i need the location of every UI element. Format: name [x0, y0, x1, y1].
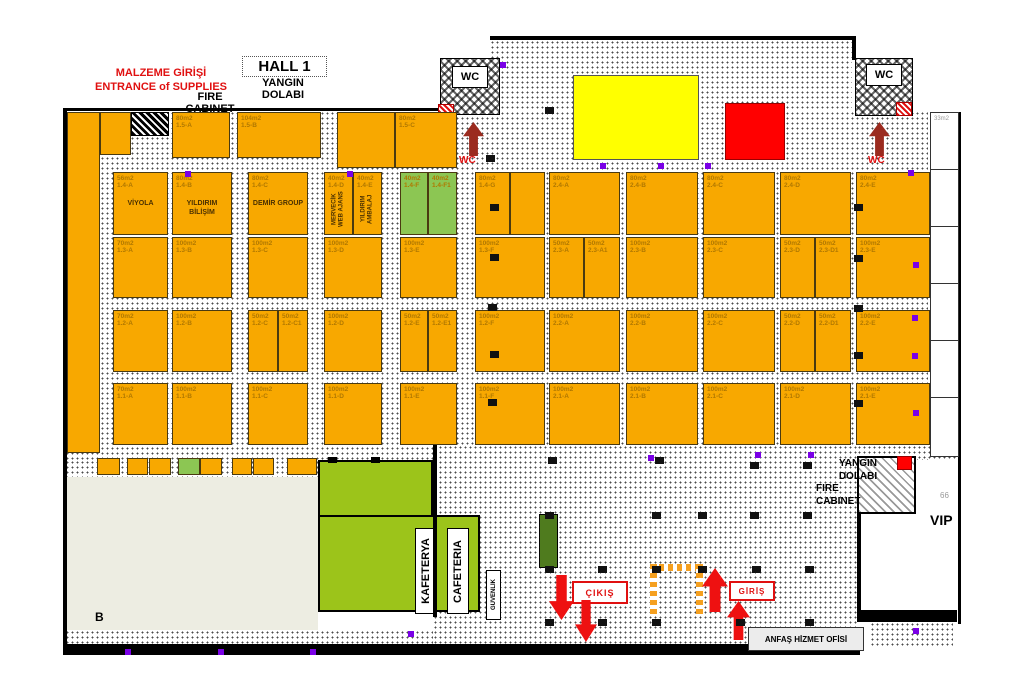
side-room	[930, 340, 959, 399]
booth-size-and-code: 100m21.3-F	[476, 238, 544, 255]
booth-size-and-code: 80m21.5-C	[396, 113, 456, 130]
hall-floor-plan: B KAFETERYA CAFETERIA GÜVENLİK WC WC WC …	[0, 0, 1018, 700]
pillar-marker	[652, 619, 661, 626]
fire-br-line4: CABINET	[816, 496, 900, 509]
pillar-marker	[854, 255, 863, 262]
booth-1.1-E[interactable]: 100m21.1-E	[400, 383, 457, 445]
booth-1.1-D[interactable]: 100m21.1-D	[324, 383, 382, 445]
pillar-marker	[698, 566, 707, 573]
wc-left-label: WC	[461, 71, 479, 83]
booth-block[interactable]	[510, 172, 545, 235]
booth-company-name: YILDIRIM AMBALAJ	[354, 186, 381, 232]
booth-1.3-D[interactable]: 100m21.3-D	[324, 237, 382, 298]
booth-1.2-A[interactable]: 70m21.2-A	[113, 310, 168, 372]
utility-point-marker	[310, 649, 316, 655]
booth-company-name: MERVECİK WEB AJANS	[325, 186, 352, 232]
booth-1.4-C[interactable]: 80m21.4-CDEMİR GROUP	[248, 172, 308, 235]
pillar-marker	[548, 457, 557, 464]
booth-size-and-code: 40m21.4-F	[401, 173, 427, 190]
booth-size-and-code	[68, 113, 99, 115]
fire-cabinet-top-turkish: YANGIN DOLABI	[243, 77, 323, 101]
wall-cafeteria-right	[433, 445, 437, 617]
booth-block[interactable]	[178, 458, 200, 475]
utility-point-marker	[913, 628, 919, 634]
booth-size-and-code: 104m21.5-B	[238, 113, 320, 130]
pillar-marker	[490, 351, 499, 358]
booth-2.2-A[interactable]: 100m22.2-A	[549, 310, 620, 372]
kafeterya-label: KAFETERYA	[420, 538, 432, 604]
booth-size-and-code	[150, 459, 170, 461]
entry-sign: GİRİŞ	[729, 581, 775, 601]
cafeteria-label: CAFETERIA	[452, 540, 464, 603]
utility-point-marker	[705, 163, 711, 169]
cafeteria-tab-1	[328, 457, 337, 463]
utility-point-marker	[912, 353, 918, 359]
utility-point-marker	[600, 163, 606, 169]
booth-2.1-A[interactable]: 100m22.1-A	[549, 383, 620, 445]
booth-size-and-code: 50m21.2-C	[249, 311, 277, 328]
booth-size-and-code: 50m22.3-D	[781, 238, 814, 255]
booth-block[interactable]	[100, 112, 131, 155]
fire-point-top-right	[896, 102, 912, 116]
pillar-marker	[736, 619, 745, 626]
booth-size-and-code: 40m21.4-F1	[429, 173, 456, 190]
floor-area-br-bottom	[870, 622, 953, 648]
booth-1.1-C[interactable]: 100m21.1-C	[248, 383, 308, 445]
hall-title: HALL 1	[258, 58, 310, 75]
utility-point-marker	[912, 315, 918, 321]
booth-2.4-E[interactable]: 80m22.4-E	[856, 172, 930, 235]
booth-1.5-C[interactable]: 80m21.5-C	[395, 112, 457, 168]
booth-size-and-code: 80m22.4-D	[781, 173, 850, 190]
pillar-marker	[750, 462, 759, 469]
info-kiosk	[539, 514, 558, 568]
booth-2.3-D[interactable]: 50m22.3-D	[780, 237, 815, 298]
booth-size-and-code: 100m21.1-B	[173, 384, 231, 401]
utility-point-marker	[218, 649, 224, 655]
booth-1.4-F1[interactable]: 40m21.4-F1	[428, 172, 457, 235]
utility-point-marker	[913, 410, 919, 416]
pillar-marker	[854, 204, 863, 211]
booth-1.4-D[interactable]: 40m21.4-DMERVECİK WEB AJANS	[324, 172, 353, 235]
red-block	[725, 103, 785, 160]
pillar-marker	[655, 457, 664, 464]
side-room	[930, 226, 959, 285]
wall-top-left	[65, 108, 490, 111]
utility-point-marker	[755, 452, 761, 458]
fire-br-line1: YANGIN	[816, 458, 900, 471]
booth-size-and-code: 100m21.3-C	[249, 238, 307, 255]
guvenlik-label: GÜVENLİK	[491, 579, 497, 610]
booth-2.4-A[interactable]: 80m22.4-A	[549, 172, 620, 235]
pillar-marker	[698, 512, 707, 519]
booth-2.4-D[interactable]: 80m22.4-D	[780, 172, 851, 235]
booth-size-and-code	[338, 113, 394, 115]
booth-1.2-F[interactable]: 100m21.2-F	[475, 310, 545, 372]
booth-2.2-D[interactable]: 50m22.2-D	[780, 310, 815, 372]
booth-size-and-code: 50m22.3-A	[550, 238, 583, 255]
booth-block[interactable]	[97, 458, 120, 475]
booth-size-and-code: 100m21.3-E	[401, 238, 456, 255]
adjacent-hall-b	[67, 477, 318, 630]
pillar-marker	[805, 619, 814, 626]
booth-size-and-code: 80m22.4-C	[704, 173, 774, 190]
booth-1.1-B[interactable]: 100m21.1-B	[172, 383, 232, 445]
booth-size-and-code: 50m21.2-C1	[279, 311, 307, 328]
dolabi-line: DOLABI	[243, 89, 323, 101]
booth-size-and-code: 56m21.4-A	[114, 173, 167, 190]
booth-size-and-code	[201, 459, 221, 461]
pillar-marker	[545, 619, 554, 626]
booth-size-and-code: 100m21.1-E	[401, 384, 456, 401]
booth-company-name: DEMİR GROUP	[251, 200, 305, 208]
pillar-marker	[803, 512, 812, 519]
booth-size-and-code: 100m22.2-C	[704, 311, 774, 328]
booth-1.3-C[interactable]: 100m21.3-C	[248, 237, 308, 298]
booth-company-name: YILDIRIM BİLİŞİM	[175, 200, 229, 217]
booth-1.3-F[interactable]: 100m21.3-F	[475, 237, 545, 298]
fire-cabinet-top-line1: FIRE	[178, 91, 242, 103]
booth-1.1-F[interactable]: 100m21.1-F	[475, 383, 545, 445]
booth-block[interactable]	[200, 458, 222, 475]
booth-size-and-code: 100m21.1-F	[476, 384, 544, 401]
wc-right-label-box: WC	[866, 64, 902, 86]
booth-size-and-code	[98, 459, 119, 461]
booth-2.2-E[interactable]: 100m22.2-E	[856, 310, 930, 372]
booth-1.4-F[interactable]: 40m21.4-F	[400, 172, 428, 235]
booth-block[interactable]	[287, 458, 317, 475]
booth-size-and-code: 80m21.4-G	[476, 173, 509, 190]
service-office-label: ANFAŞ HİZMET OFİSİ	[765, 635, 847, 644]
utility-point-marker	[908, 170, 914, 176]
pillar-marker	[752, 566, 761, 573]
vip-label: VIP	[930, 512, 953, 528]
booth-size-and-code	[179, 459, 199, 461]
supply-entrance-line1: MALZEME GİRİŞİ	[86, 66, 236, 80]
booth-2.3-B[interactable]: 100m22.3-B	[626, 237, 698, 298]
booth-size-and-code: 100m22.2-B	[627, 311, 697, 328]
hall-b-label: B	[95, 610, 104, 624]
booth-size-and-code	[288, 459, 316, 461]
booth-size-and-code: 80m22.4-A	[550, 173, 619, 190]
booth-1.2-B[interactable]: 100m21.2-B	[172, 310, 232, 372]
booth-size-and-code: 70m21.3-A	[114, 238, 167, 255]
pillar-marker	[854, 352, 863, 359]
booth-size-and-code	[254, 459, 273, 461]
fire-br-line3: FIRE	[816, 483, 900, 496]
booth-2.4-B[interactable]: 80m22.4-B	[626, 172, 698, 235]
booth-2.3-A1[interactable]: 50m22.3-A1	[584, 237, 620, 298]
booth-1.3-E[interactable]: 100m21.3-E	[400, 237, 457, 298]
utility-point-marker	[808, 452, 814, 458]
wc-right-label: WC	[875, 69, 893, 81]
booth-size-and-code: 100m22.1-D	[781, 384, 850, 401]
guvenlik-label-box: GÜVENLİK	[486, 570, 501, 620]
pillar-marker	[545, 512, 554, 519]
booth-size-and-code: 80m21.4-C	[249, 173, 307, 190]
yangin-line: YANGIN	[243, 77, 323, 89]
booth-1.3-B[interactable]: 100m21.3-B	[172, 237, 232, 298]
wall-top-right-stub	[852, 36, 856, 60]
booth-1.2-C1[interactable]: 50m21.2-C1	[278, 310, 308, 372]
booth-size-and-code: 80m22.4-E	[857, 173, 929, 190]
cafeteria-label-box: CAFETERIA	[447, 528, 469, 614]
cafeteria-area-upper	[318, 460, 433, 517]
pillar-marker	[805, 566, 814, 573]
booth-size-and-code: 50m22.2-D	[781, 311, 814, 328]
utility-point-marker	[658, 163, 664, 169]
booth-1.2-E[interactable]: 50m21.2-E	[400, 310, 428, 372]
booth-size-and-code: 100m22.1-E	[857, 384, 929, 401]
cafeteria-tab-2	[371, 457, 380, 463]
booth-size-and-code	[233, 459, 251, 461]
fire-br-line2: DOLABI	[816, 471, 900, 484]
booth-size-and-code: 50m21.2-E	[401, 311, 427, 328]
yellow-block	[573, 75, 699, 160]
booth-size-and-code: 100m21.2-F	[476, 311, 544, 328]
pillar-marker	[490, 254, 499, 261]
pillar-marker	[803, 462, 812, 469]
booth-size-and-code: 50m22.3-D1	[816, 238, 850, 255]
booth-size-and-code: 70m21.1-A	[114, 384, 167, 401]
booth-size-and-code: 100m22.1-B	[627, 384, 697, 401]
wall-bottom	[65, 644, 860, 655]
booth-size-and-code: 100m21.3-B	[173, 238, 231, 255]
pillar-marker	[854, 305, 863, 312]
booth-size-and-code: 100m22.3-C	[704, 238, 774, 255]
pillar-marker	[490, 204, 499, 211]
booth-size-and-code: 50m22.3-A1	[585, 238, 619, 255]
booth-size-and-code: 100m22.2-A	[550, 311, 619, 328]
wall-vip-bottom	[857, 610, 957, 622]
booth-size-and-code: 100m21.1-D	[325, 384, 381, 401]
booth-size-and-code: 100m21.2-B	[173, 311, 231, 328]
booth-block[interactable]	[253, 458, 274, 475]
booth-size-and-code: 80m21.4-B	[173, 173, 231, 190]
utility-point-marker	[347, 171, 353, 177]
utility-point-marker	[125, 649, 131, 655]
booth-size-and-code: 70m21.2-A	[114, 311, 167, 328]
booth-2.1-B[interactable]: 100m22.1-B	[626, 383, 698, 445]
booth-1.1-A[interactable]: 70m21.1-A	[113, 383, 168, 445]
booth-1.2-D[interactable]: 100m21.2-D	[324, 310, 382, 372]
booth-1.4-E[interactable]: 40m21.4-EYILDIRIM AMBALAJ	[353, 172, 382, 235]
booth-block[interactable]	[232, 458, 252, 475]
pillar-marker	[488, 399, 497, 406]
booth-block[interactable]	[149, 458, 171, 475]
booth-size-and-code: 100m22.1-C	[704, 384, 774, 401]
side-room-size: 33m2	[934, 116, 949, 122]
booth-1.5-B[interactable]: 104m21.5-B	[237, 112, 321, 158]
booth-size-and-code: 50m21.2-E1	[429, 311, 456, 328]
booth-1.3-A[interactable]: 70m21.3-A	[113, 237, 168, 298]
wc-left-label-box: WC	[452, 66, 488, 88]
booth-size-and-code: 80m22.4-B	[627, 173, 697, 190]
exit-sign-label: ÇIKIŞ	[585, 588, 614, 598]
booth-2.3-D1[interactable]: 50m22.3-D1	[815, 237, 851, 298]
side-room	[930, 169, 959, 228]
booth-company-name: VİYOLA	[116, 200, 165, 208]
booth-block[interactable]	[127, 458, 148, 475]
utility-point-marker	[500, 62, 506, 68]
booth-size-and-code	[511, 173, 544, 175]
pillar-marker	[750, 512, 759, 519]
dim-66-label: 66	[940, 491, 949, 500]
fire-cabinet-br-label: YANGIN DOLABI FIRE CABINET	[816, 458, 900, 508]
pillar-marker	[486, 155, 495, 162]
pillar-marker	[598, 619, 607, 626]
booth-2.2-C[interactable]: 100m22.2-C	[703, 310, 775, 372]
side-room	[930, 397, 959, 457]
booth-size-and-code: 100m21.3-D	[325, 238, 381, 255]
booth-1.2-E1[interactable]: 50m21.2-E1	[428, 310, 457, 372]
pillar-marker	[545, 566, 554, 573]
booth-1.4-B[interactable]: 80m21.4-BYILDIRIM BİLİŞİM	[172, 172, 232, 235]
pillar-marker	[545, 107, 554, 114]
booth-2.4-C[interactable]: 80m22.4-C	[703, 172, 775, 235]
pillar-marker	[488, 304, 497, 311]
booth-size-and-code	[128, 459, 147, 461]
booth-2.1-C[interactable]: 100m22.1-C	[703, 383, 775, 445]
booth-2.3-C[interactable]: 100m22.3-C	[703, 237, 775, 298]
utility-point-marker	[648, 455, 654, 461]
wc-sign-right: WC	[868, 155, 885, 166]
wall-vip-left	[857, 512, 861, 612]
pillar-marker	[854, 400, 863, 407]
booth-2.2-B[interactable]: 100m22.2-B	[626, 310, 698, 372]
pillar-marker	[598, 566, 607, 573]
booth-size-and-code: 100m22.3-B	[627, 238, 697, 255]
hall-title-box: HALL 1	[242, 56, 327, 77]
wc-sign-left: WC	[459, 155, 476, 166]
booth-2.1-D[interactable]: 100m22.1-D	[780, 383, 851, 445]
booth-size-and-code: 80m21.5-A	[173, 113, 229, 130]
booth-size-and-code: 100m21.2-D	[325, 311, 381, 328]
pillar-marker	[652, 566, 661, 573]
booth-block[interactable]	[337, 112, 395, 168]
wall-top-right	[490, 36, 856, 40]
pillar-marker	[652, 512, 661, 519]
booth-size-and-code: 100m21.1-C	[249, 384, 307, 401]
floor-area-bl-corridor	[65, 630, 433, 645]
entry-sign-label: GİRİŞ	[739, 587, 766, 596]
booth-1.4-A[interactable]: 56m21.4-AVİYOLA	[113, 172, 168, 235]
booth-size-and-code: 100m22.1-A	[550, 384, 619, 401]
booth-block[interactable]	[67, 112, 100, 453]
booth-size-and-code: 100m22.2-E	[857, 311, 929, 328]
booth-2.3-A[interactable]: 50m22.3-A	[549, 237, 584, 298]
booth-2.2-D1[interactable]: 50m22.2-D1	[815, 310, 851, 372]
exit-sign: ÇIKIŞ	[572, 581, 628, 604]
booth-size-and-code	[101, 113, 130, 115]
utility-point-marker	[913, 262, 919, 268]
supply-entrance-hatch	[131, 112, 169, 136]
side-room	[930, 283, 959, 342]
utility-point-marker	[185, 171, 191, 177]
booth-size-and-code: 50m22.2-D1	[816, 311, 850, 328]
booth-1.2-C[interactable]: 50m21.2-C	[248, 310, 278, 372]
booth-size-and-code: 100m22.3-E	[857, 238, 929, 255]
booth-1.5-A[interactable]: 80m21.5-A	[172, 112, 230, 158]
utility-point-marker	[408, 631, 414, 637]
service-office-box: ANFAŞ HİZMET OFİSİ	[748, 627, 864, 651]
